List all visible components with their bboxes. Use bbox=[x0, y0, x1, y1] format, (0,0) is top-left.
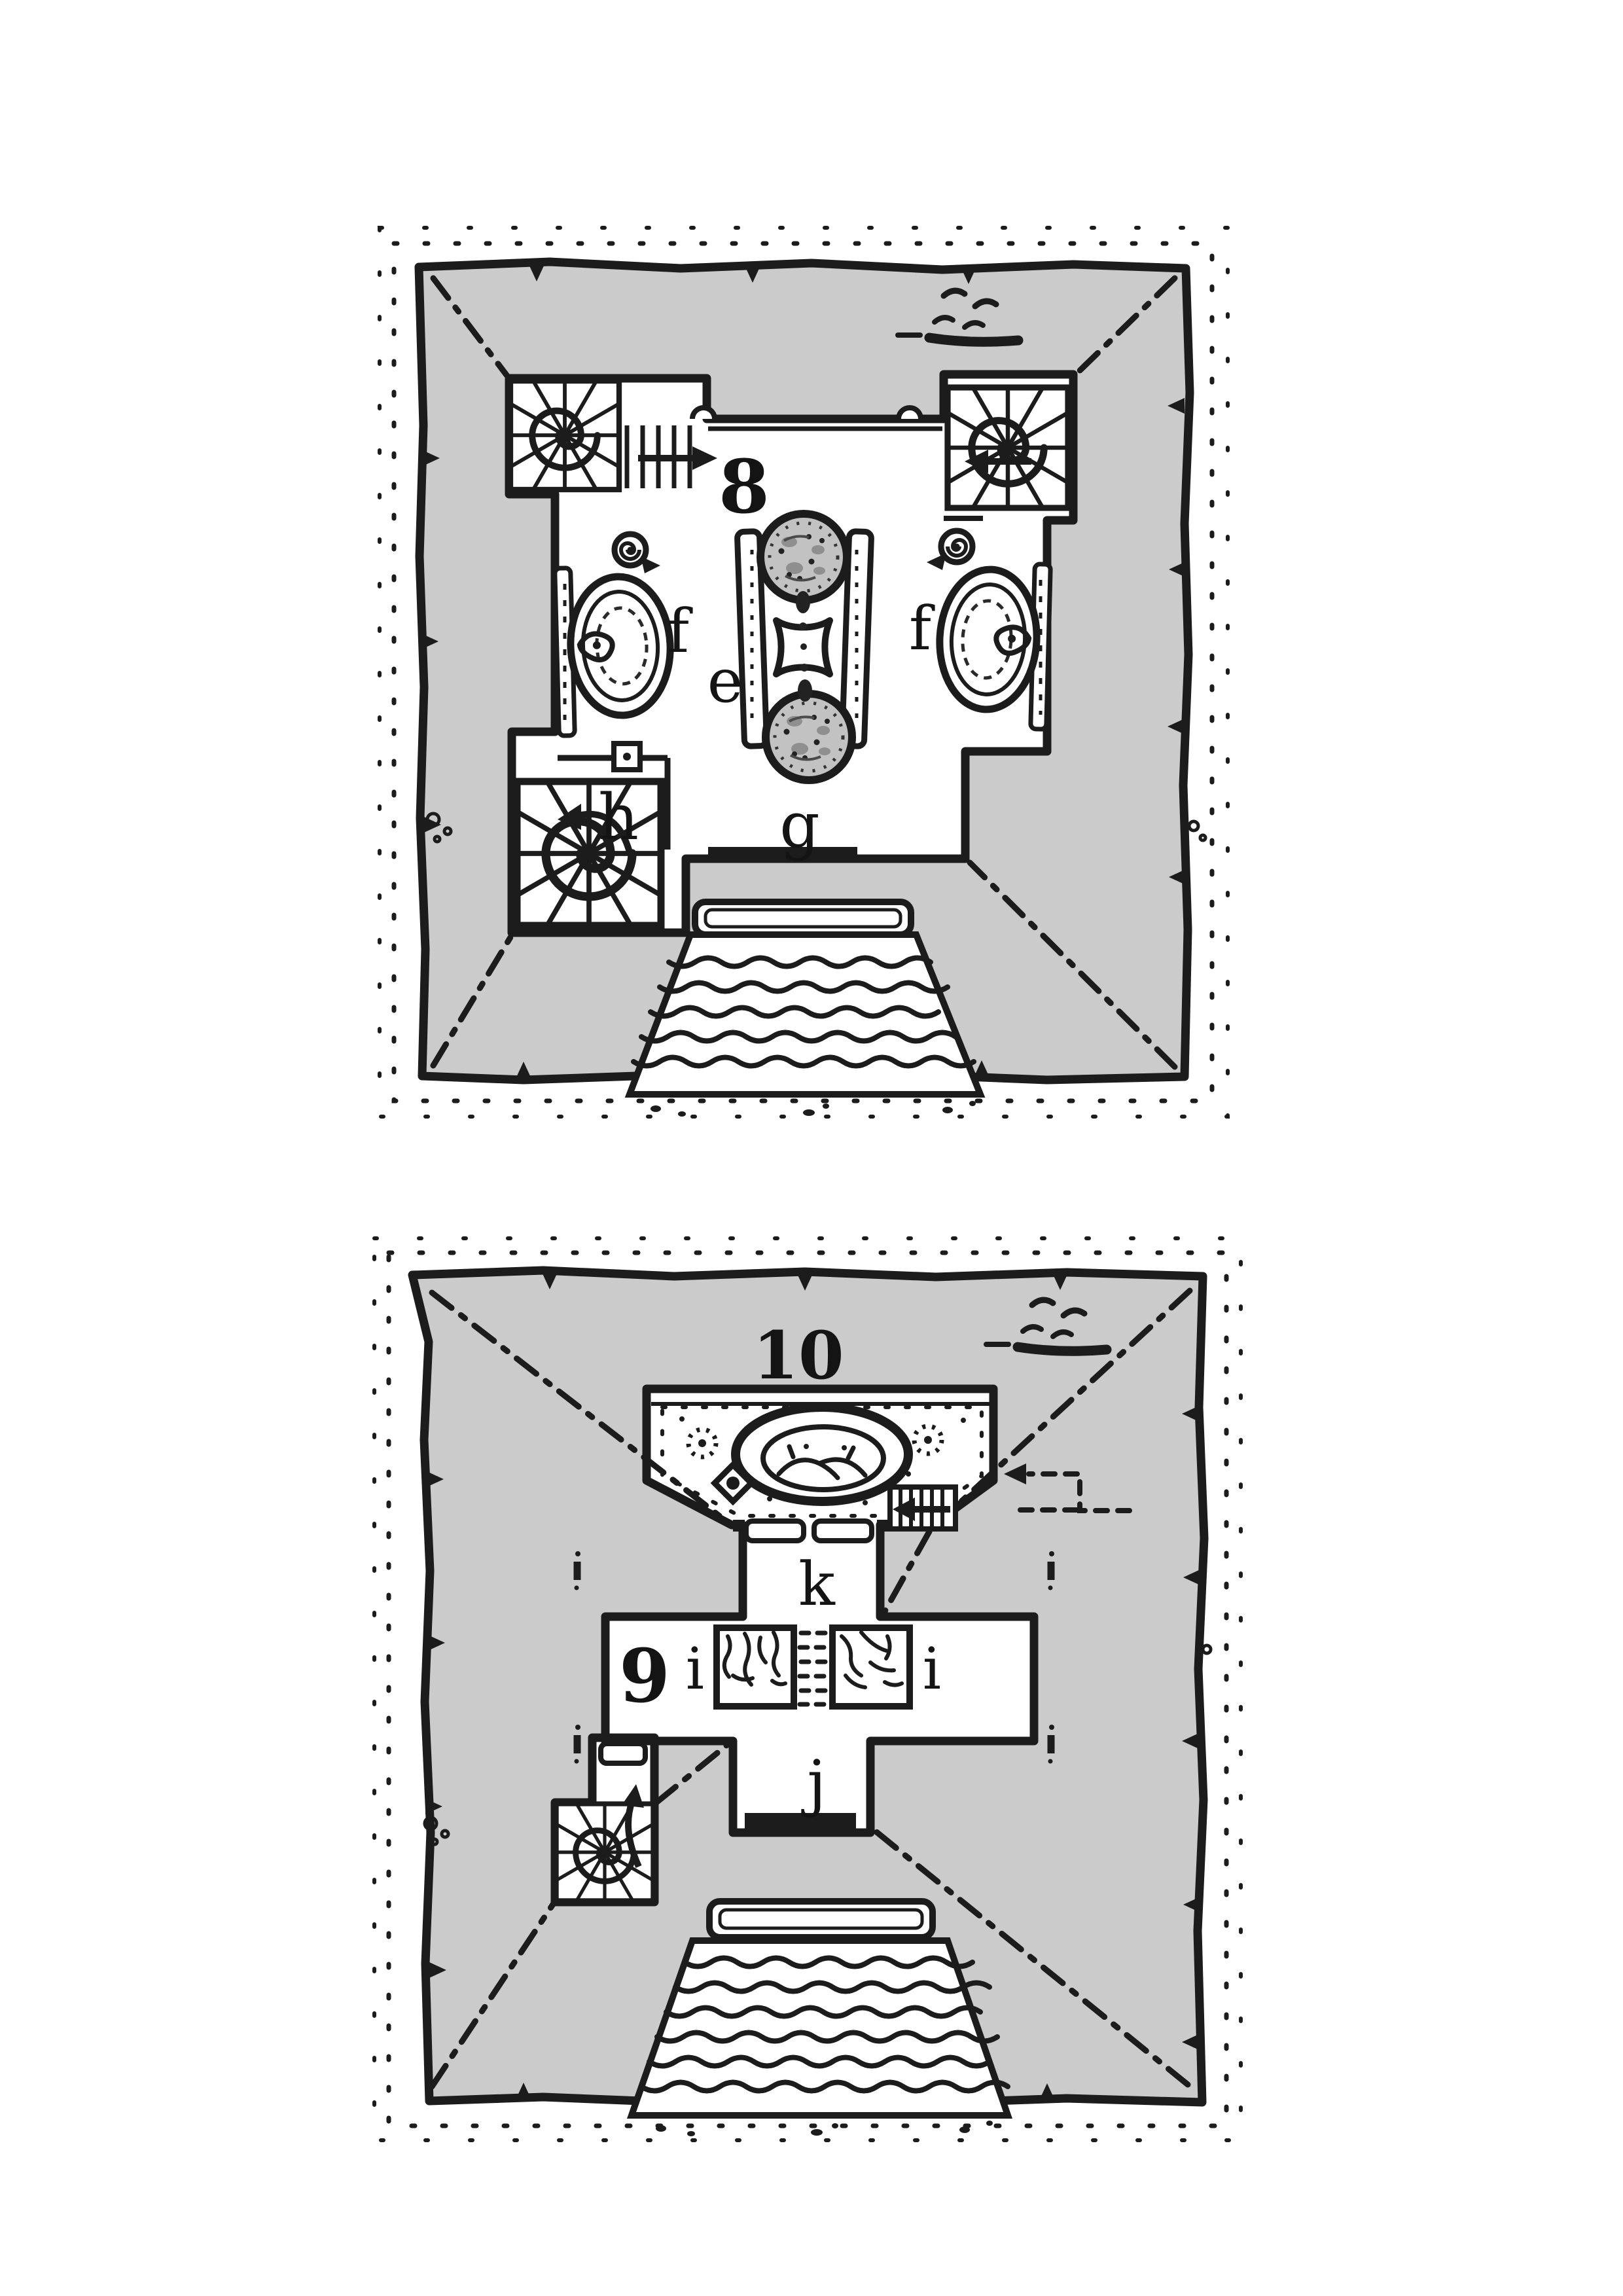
altar bbox=[776, 591, 830, 702]
ammonite-shell-east bbox=[927, 531, 972, 570]
cracked-pillar-east bbox=[832, 1628, 910, 1706]
ammonite-shell-west bbox=[615, 534, 660, 573]
dotted-circle-east bbox=[914, 1426, 942, 1454]
map-canvas: 8 e f f g h bbox=[0, 0, 1623, 2296]
mosaic-dome-north bbox=[760, 514, 847, 600]
label-room-f-east: f bbox=[909, 594, 935, 664]
cracked-pillar-west bbox=[717, 1628, 794, 1706]
label-pillar-i-west: i bbox=[686, 1635, 704, 1702]
balcony-pool bbox=[736, 1407, 908, 1501]
label-passage-j: j bbox=[800, 1748, 826, 1819]
ladder bbox=[890, 1487, 955, 1529]
plan-9-10: 10 9 k i i j bbox=[374, 1238, 1241, 2140]
plan-8: 8 e f f g h bbox=[380, 228, 1228, 1117]
label-room-g: g bbox=[779, 789, 819, 862]
scanned-map-page: 8 e f f g h bbox=[0, 0, 1623, 2296]
label-plan10-number: 10 bbox=[753, 1317, 844, 1394]
label-pillar-i-east: i bbox=[923, 1635, 941, 1702]
spiral-staircase-southwest bbox=[517, 781, 661, 925]
label-plan8-number: 8 bbox=[719, 444, 770, 530]
spiral-staircase-northeast bbox=[948, 387, 1068, 508]
door-post bbox=[877, 1520, 889, 1532]
spiral-staircase-northwest bbox=[510, 381, 619, 490]
label-plan9-number: 9 bbox=[619, 1634, 670, 1719]
label-room-e: e bbox=[707, 646, 743, 716]
mosaic-dome-south bbox=[766, 694, 852, 780]
annex-bench bbox=[601, 1744, 645, 1763]
dashed-column-strip bbox=[800, 1633, 826, 1704]
threshold-bench-west bbox=[746, 1521, 804, 1541]
south-door-bar bbox=[745, 1813, 856, 1830]
spiral-staircase-southwest bbox=[556, 1804, 653, 1901]
threshold-bench-east bbox=[814, 1521, 872, 1541]
serpent-basin-west bbox=[567, 574, 674, 718]
arrow-east-icon bbox=[638, 446, 717, 470]
dotted-circle-west bbox=[688, 1429, 716, 1457]
label-passage-k: k bbox=[798, 1549, 836, 1619]
label-room-h: h bbox=[598, 781, 639, 854]
door-post bbox=[733, 1520, 745, 1532]
serpent-basin-east bbox=[936, 567, 1041, 711]
label-room-f-west: f bbox=[667, 596, 693, 666]
